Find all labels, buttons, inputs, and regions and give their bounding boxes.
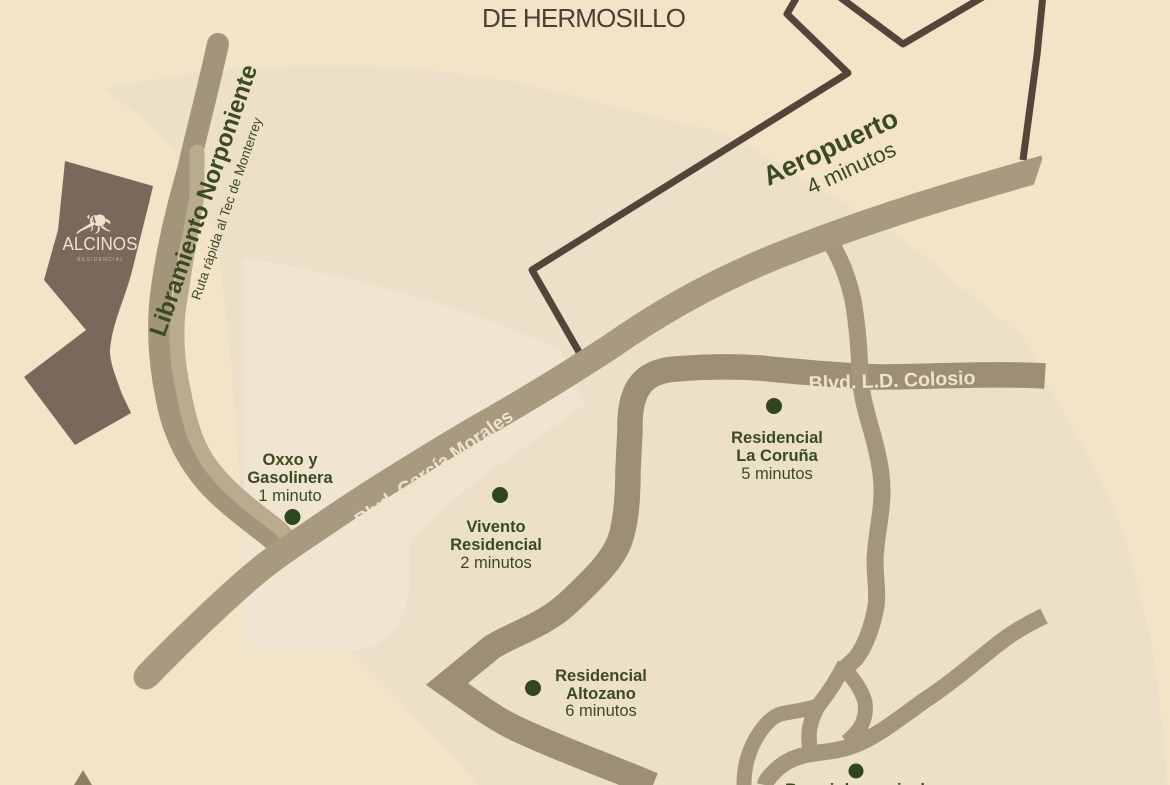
svg-text:1 minuto: 1 minuto xyxy=(258,487,321,505)
svg-text:Gasolinera: Gasolinera xyxy=(247,469,333,487)
svg-text:Residencial: Residencial xyxy=(450,536,542,554)
svg-text:ALCINOS: ALCINOS xyxy=(63,234,138,254)
svg-text:RESIDENCIAL: RESIDENCIAL xyxy=(77,257,123,263)
svg-text:5 minutos: 5 minutos xyxy=(741,465,813,483)
svg-text:Vivento: Vivento xyxy=(466,518,525,536)
svg-text:Residencial: Residencial xyxy=(731,429,823,447)
svg-text:Residencial: Residencial xyxy=(555,667,647,685)
svg-text:6 minutos: 6 minutos xyxy=(565,702,637,720)
svg-text:DE HERMOSILLO: DE HERMOSILLO xyxy=(482,3,686,33)
svg-text:Altozano: Altozano xyxy=(566,685,636,703)
svg-text:2 minutos: 2 minutos xyxy=(460,554,532,572)
svg-text:La Coruña: La Coruña xyxy=(736,447,818,465)
svg-text:Oxxo y: Oxxo y xyxy=(262,451,318,469)
